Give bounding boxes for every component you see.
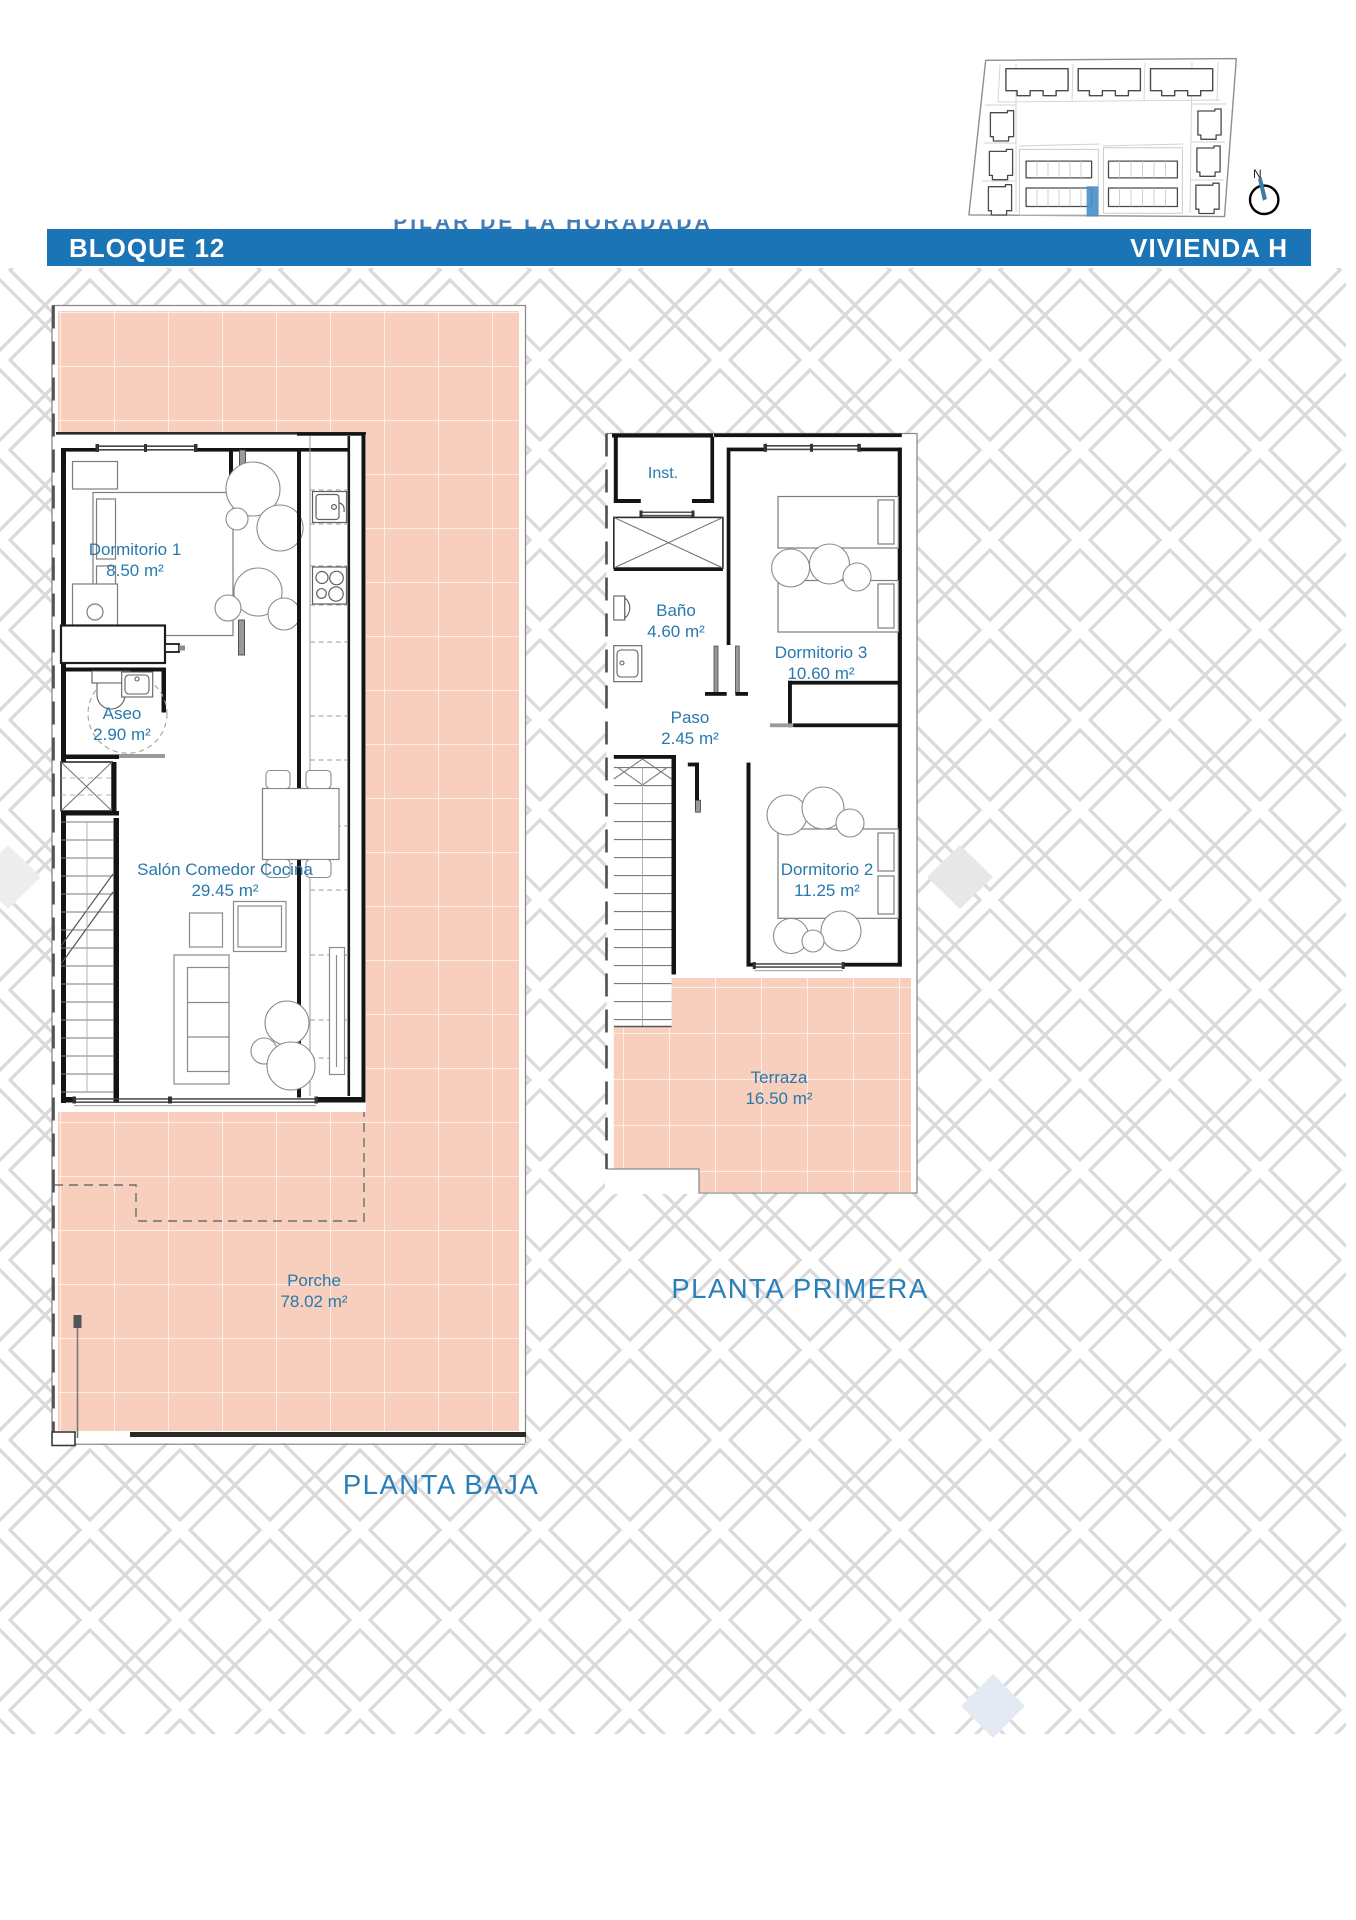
svg-text:16.50 m²: 16.50 m²	[745, 1089, 812, 1108]
svg-text:PLANTA PRIMERA: PLANTA PRIMERA	[671, 1273, 928, 1304]
svg-text:PLANTA BAJA: PLANTA BAJA	[343, 1469, 539, 1500]
svg-text:Porche: Porche	[287, 1271, 341, 1290]
svg-text:2.90 m²: 2.90 m²	[93, 725, 151, 744]
svg-text:Inst.: Inst.	[648, 465, 678, 482]
svg-text:78.02 m²: 78.02 m²	[280, 1292, 347, 1311]
svg-text:2.45 m²: 2.45 m²	[661, 729, 719, 748]
svg-text:N: N	[1253, 167, 1262, 181]
svg-text:Aseo: Aseo	[103, 704, 142, 723]
svg-text:VIVIENDA H: VIVIENDA H	[1130, 233, 1288, 263]
svg-text:Dormitorio 2: Dormitorio 2	[781, 860, 874, 879]
svg-text:Terraza: Terraza	[751, 1068, 808, 1087]
svg-text:Baño: Baño	[656, 601, 696, 620]
svg-text:BLOQUE 12: BLOQUE 12	[69, 233, 225, 263]
svg-text:4.60 m²: 4.60 m²	[647, 622, 705, 641]
svg-text:Dormitorio 3: Dormitorio 3	[775, 643, 868, 662]
svg-text:11.25 m²: 11.25 m²	[794, 881, 860, 900]
svg-text:8.50 m²: 8.50 m²	[106, 561, 164, 580]
svg-text:Dormitorio 1: Dormitorio 1	[89, 540, 182, 559]
svg-text:29.45 m²: 29.45 m²	[191, 881, 258, 900]
svg-text:Paso: Paso	[671, 708, 710, 727]
svg-text:Salón Comedor Cocina: Salón Comedor Cocina	[137, 860, 313, 879]
svg-text:10.60 m²: 10.60 m²	[787, 664, 854, 683]
